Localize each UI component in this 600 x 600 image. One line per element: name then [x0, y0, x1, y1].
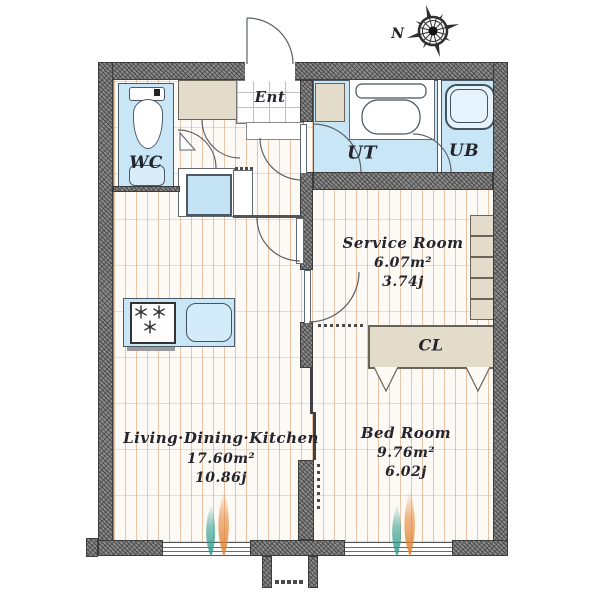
ldk-area: 17.60m² [187, 451, 255, 467]
wc-door-leaf [180, 133, 195, 150]
plan-linework: N [0, 0, 600, 600]
stove-burners-icon [135, 306, 164, 334]
bed-room-tatami: 6.02j [385, 464, 427, 480]
compass-north-label: N [390, 26, 405, 42]
ldk-tatami: 10.86j [195, 470, 247, 486]
bed-room-area: 9.76m² [377, 445, 435, 461]
bed-room-name: Bed Room [361, 424, 451, 442]
wc-label: WC [129, 153, 163, 173]
dotted-lines [235, 167, 363, 584]
compass-rose-icon: N [390, 0, 467, 66]
washer-detail-icon [356, 84, 426, 134]
cl-label: CL [419, 336, 444, 355]
closet-bifold-icons [374, 367, 490, 391]
service-room-name: Service Room [343, 234, 464, 252]
service-room-area: 6.07m² [374, 255, 432, 271]
ent-label: Ent [255, 88, 286, 106]
floor-plan: N WC Ent UT UB CL Service Room 6.07m² 3.… [0, 0, 600, 600]
ub-label: UB [449, 141, 479, 161]
ldk-name: Living·Dining·Kitchen [123, 429, 319, 447]
service-room-tatami: 3.74j [382, 274, 424, 290]
ut-label: UT [347, 143, 377, 164]
plant-decoration-icon [206, 490, 415, 557]
